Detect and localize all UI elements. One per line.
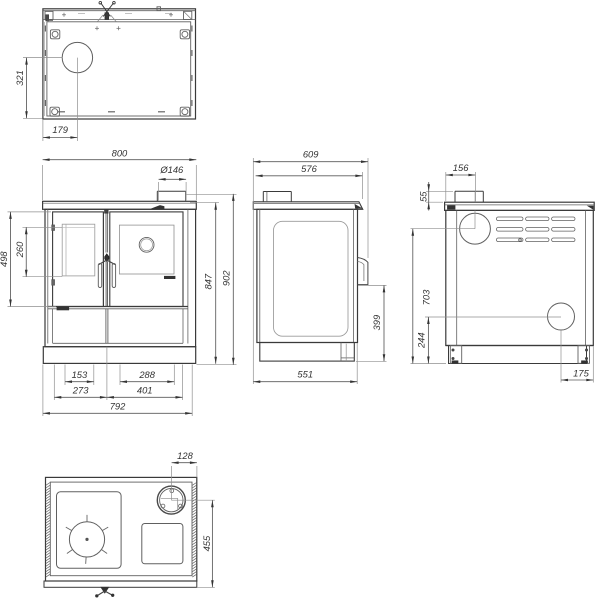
- svg-text:260: 260: [14, 241, 25, 258]
- svg-text:Ø146: Ø146: [159, 164, 184, 175]
- svg-text:792: 792: [110, 400, 126, 411]
- svg-text:288: 288: [138, 369, 155, 380]
- svg-text:551: 551: [297, 368, 313, 379]
- svg-text:902: 902: [220, 270, 231, 286]
- svg-text:321: 321: [14, 70, 25, 86]
- svg-text:153: 153: [72, 369, 88, 380]
- svg-text:128: 128: [177, 450, 193, 461]
- svg-text:800: 800: [112, 147, 128, 158]
- svg-text:609: 609: [303, 149, 319, 160]
- svg-text:498: 498: [0, 251, 9, 267]
- svg-text:179: 179: [52, 124, 68, 135]
- svg-text:703: 703: [420, 289, 431, 305]
- svg-text:273: 273: [72, 384, 89, 395]
- svg-text:244: 244: [416, 332, 427, 349]
- svg-text:401: 401: [137, 384, 153, 395]
- svg-text:399: 399: [371, 314, 382, 330]
- svg-text:576: 576: [301, 163, 317, 174]
- svg-text:455: 455: [201, 535, 212, 551]
- svg-text:847: 847: [202, 273, 213, 289]
- svg-text:55: 55: [417, 191, 428, 202]
- svg-text:175: 175: [573, 367, 589, 378]
- svg-text:156: 156: [453, 162, 469, 173]
